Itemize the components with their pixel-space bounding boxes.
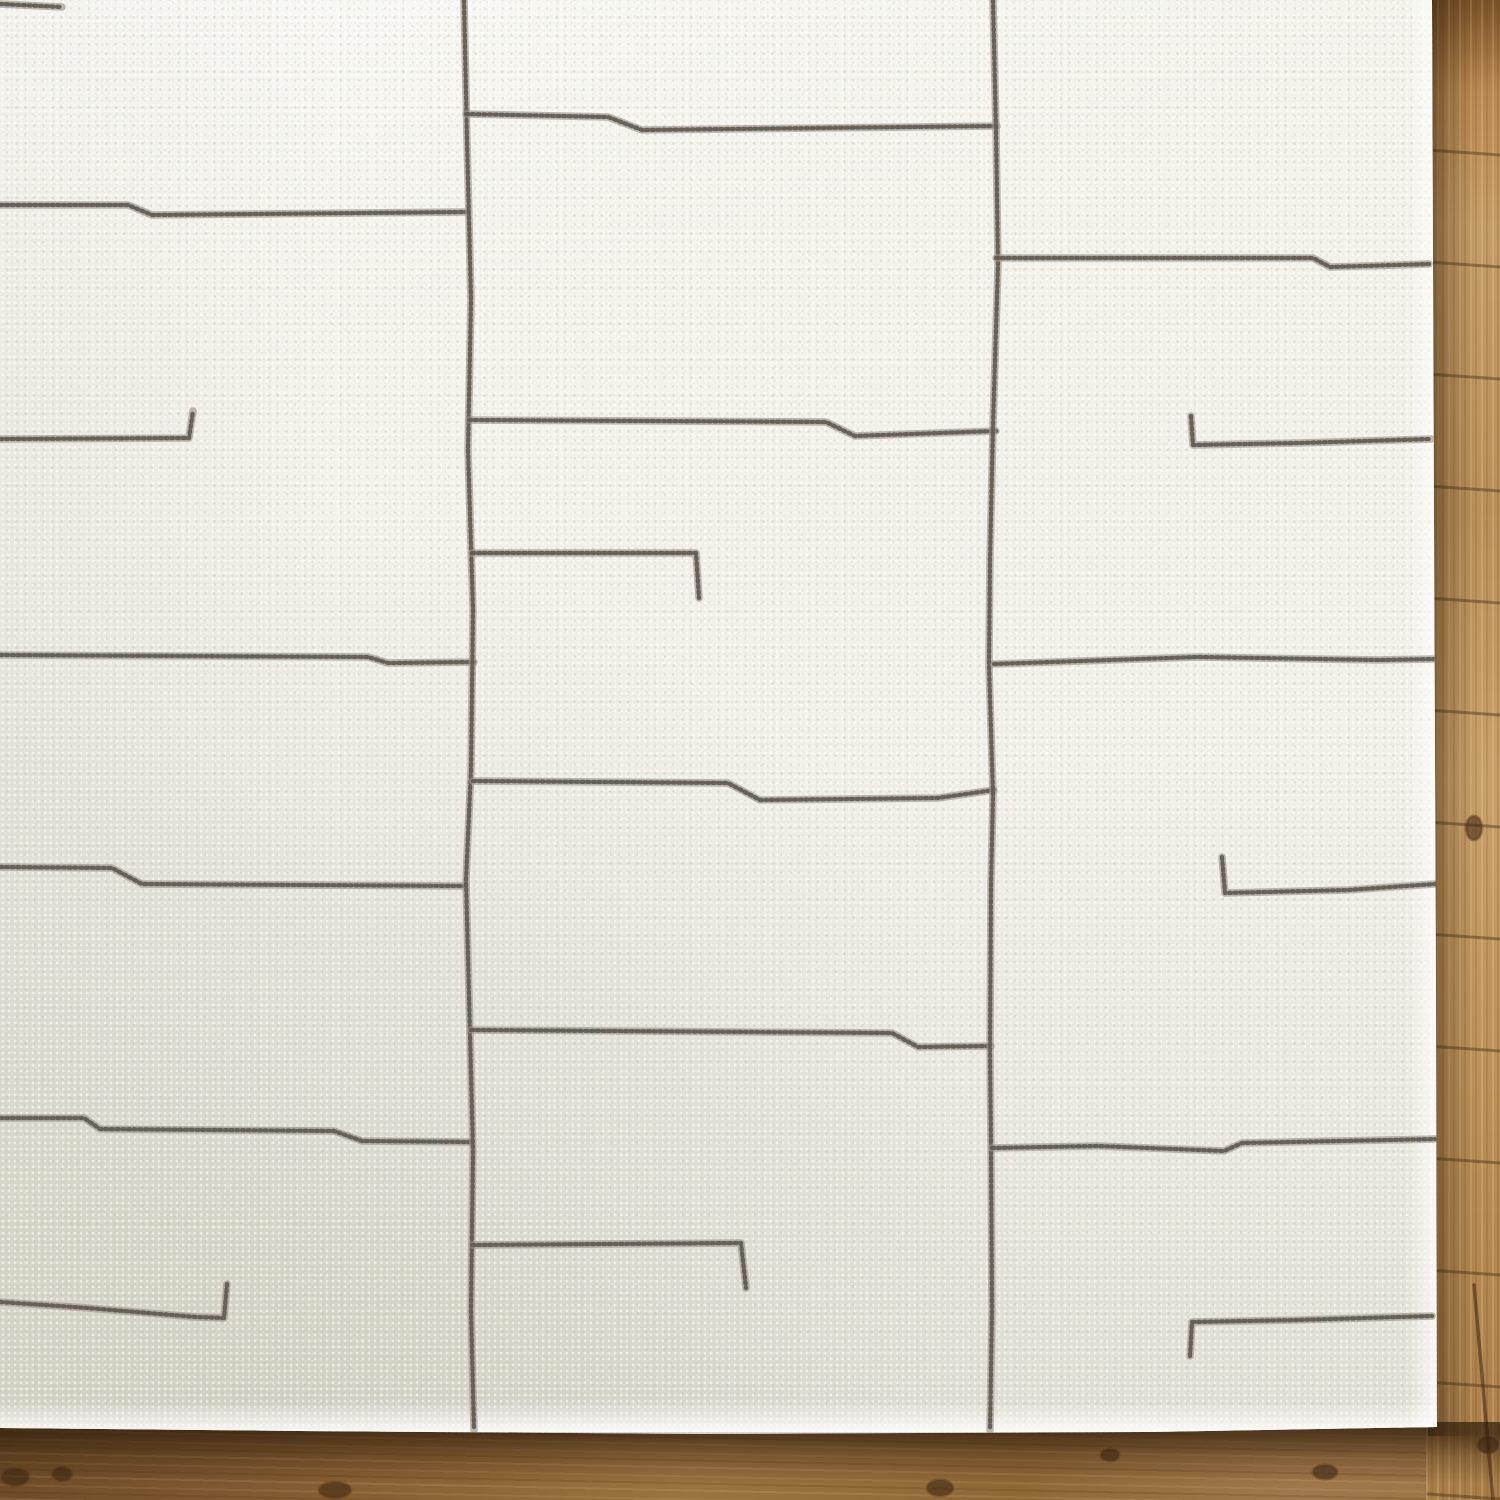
left-hook-2-under bbox=[0, 1284, 227, 1318]
rug-pattern-lines bbox=[0, 0, 1500, 1500]
mid-hook-2-under bbox=[472, 1243, 746, 1288]
mid-hook-1-under bbox=[472, 553, 699, 598]
mid-hook-1 bbox=[472, 553, 699, 598]
plank-seam bbox=[1428, 1494, 1500, 1499]
mid-hook-2 bbox=[472, 1243, 746, 1288]
wood-knot bbox=[319, 1482, 351, 1498]
rug bbox=[0, 0, 1500, 1500]
mid-line-2 bbox=[469, 420, 996, 436]
mid-line-1 bbox=[466, 114, 997, 130]
left-hook-1-under bbox=[0, 411, 193, 439]
rug-product-photo bbox=[0, 0, 1500, 1500]
